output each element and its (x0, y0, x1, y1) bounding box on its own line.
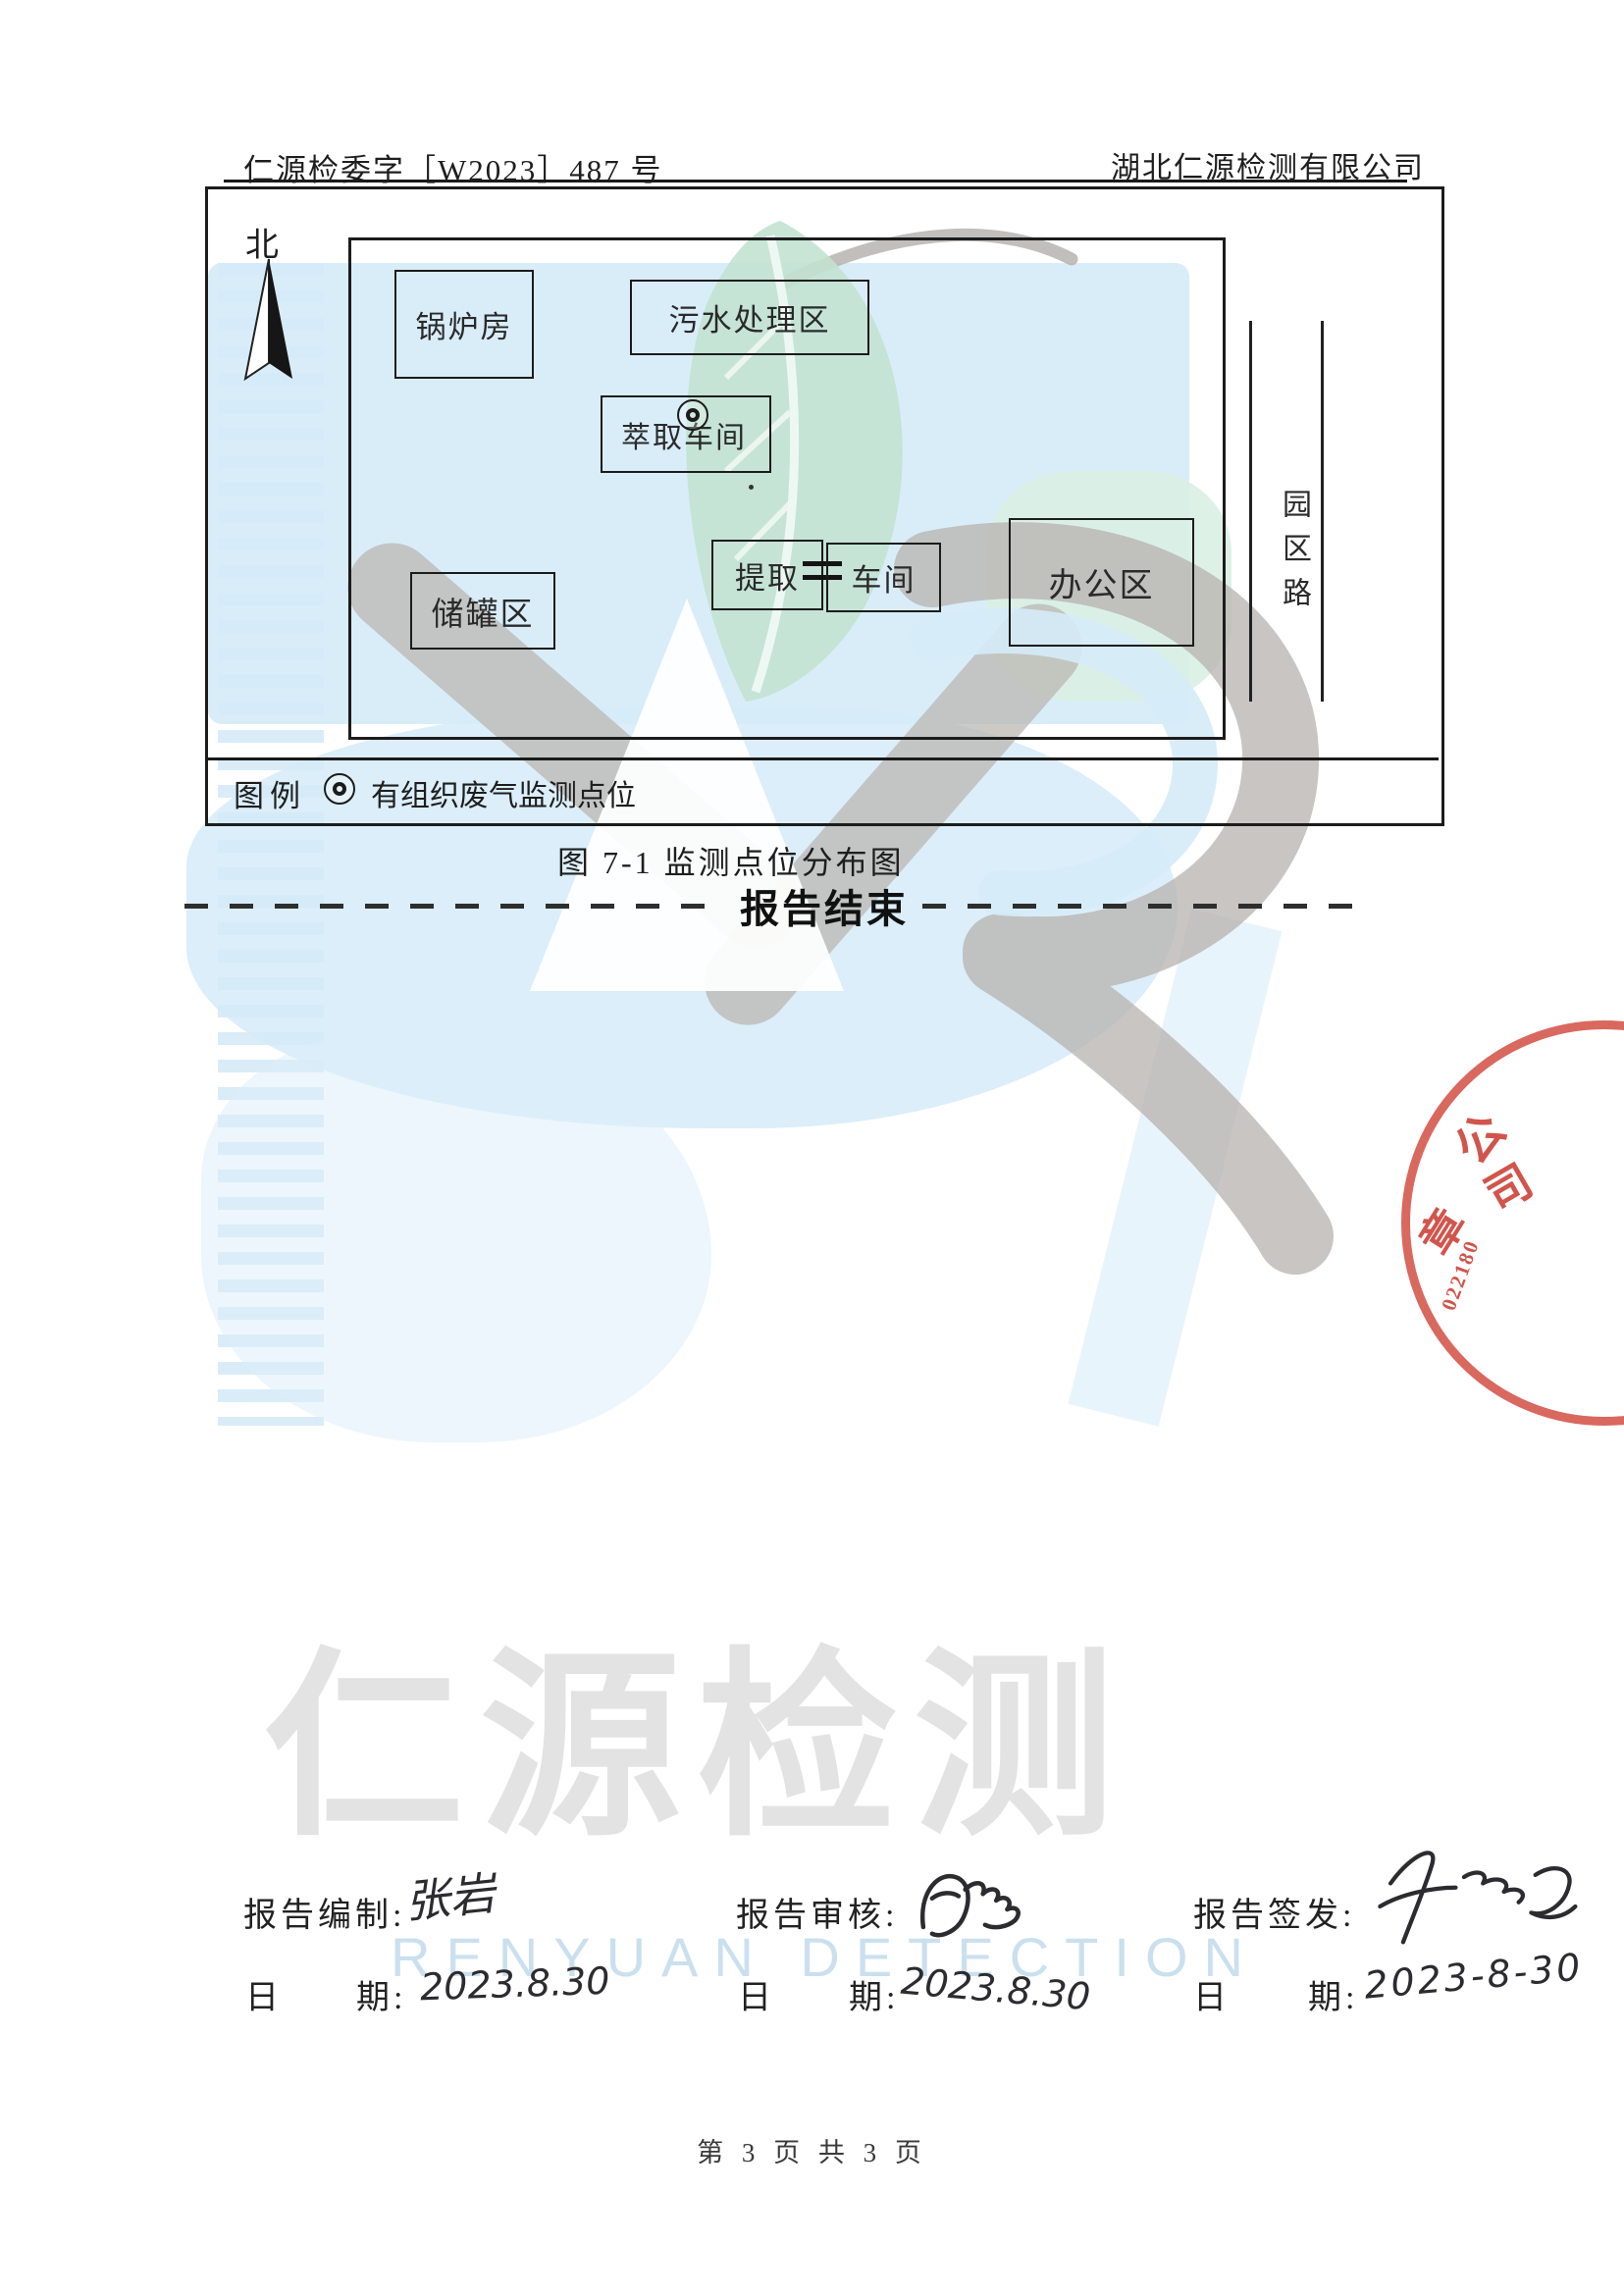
date-char: 日 (245, 1970, 283, 2018)
building-label: 办公区 (1049, 558, 1155, 606)
role-issuer: 报告签发: (1193, 1888, 1355, 1936)
date-editor: 2023.8.30 (419, 1959, 610, 2009)
date-issuer: 2023-8-30 (1363, 1945, 1586, 2007)
page-number: 第 3 页 共 3 页 (0, 2131, 1624, 2169)
building-office: 办公区 (1009, 518, 1194, 647)
building-tank-area: 储罐区 (410, 572, 555, 650)
map-dot (749, 485, 754, 490)
monitoring-point-icon (677, 399, 708, 431)
report-end-text: 报告结束 (740, 877, 909, 934)
date-char: 期: (1308, 1970, 1358, 2018)
watermark-cn-text: 仁源检测 (263, 1648, 1130, 1850)
date-char: 日 (1193, 1970, 1231, 2018)
building-label: 锅炉房 (416, 302, 513, 346)
building-label: 储罐区 (432, 588, 535, 635)
signature-editor: 张岩 (401, 1857, 498, 1931)
legend-divider (205, 757, 1439, 760)
signature-issuer (1359, 1833, 1585, 1951)
north-arrow-icon (241, 257, 296, 381)
building-label: 提取 (735, 553, 800, 598)
building-wastewater: 污水处理区 (630, 280, 869, 355)
building-cuiqu-workshop: 萃取车间 (601, 395, 771, 473)
building-label: 车间 (852, 555, 917, 600)
legend-item: 有组织废气监测点位 (371, 771, 636, 814)
signature-reviewer (905, 1856, 1032, 1945)
legend-title: 图例 (234, 771, 306, 815)
road-line (1249, 321, 1252, 702)
date-char: 日 (738, 1970, 775, 2018)
role-reviewer: 报告审核: (736, 1888, 898, 1936)
dash-segment (184, 904, 726, 909)
road-line (1321, 321, 1324, 702)
monitoring-point-legend-icon (324, 773, 355, 805)
date-char: 期: (356, 1970, 406, 2018)
doc-number: 仁源检委字［W2023］487 号 (243, 145, 663, 189)
building-boiler: 锅炉房 (394, 270, 534, 379)
report-page: 仁源检测 RENYUAN DETECTION 仁源检委字［W2023］487 号… (0, 0, 1624, 2296)
building-label: 污水处理区 (669, 295, 831, 339)
building-chejian: 车间 (826, 543, 941, 612)
dash-segment (922, 904, 1362, 909)
report-end-line: 报告结束 (184, 883, 1384, 928)
date-char: 期: (849, 1970, 899, 2018)
company-seal: 公 司 章 022180 (1401, 1020, 1624, 1426)
road-label: 园区路 (1272, 489, 1315, 646)
role-editor: 报告编制: (243, 1888, 405, 1936)
header-rule (224, 180, 1407, 183)
